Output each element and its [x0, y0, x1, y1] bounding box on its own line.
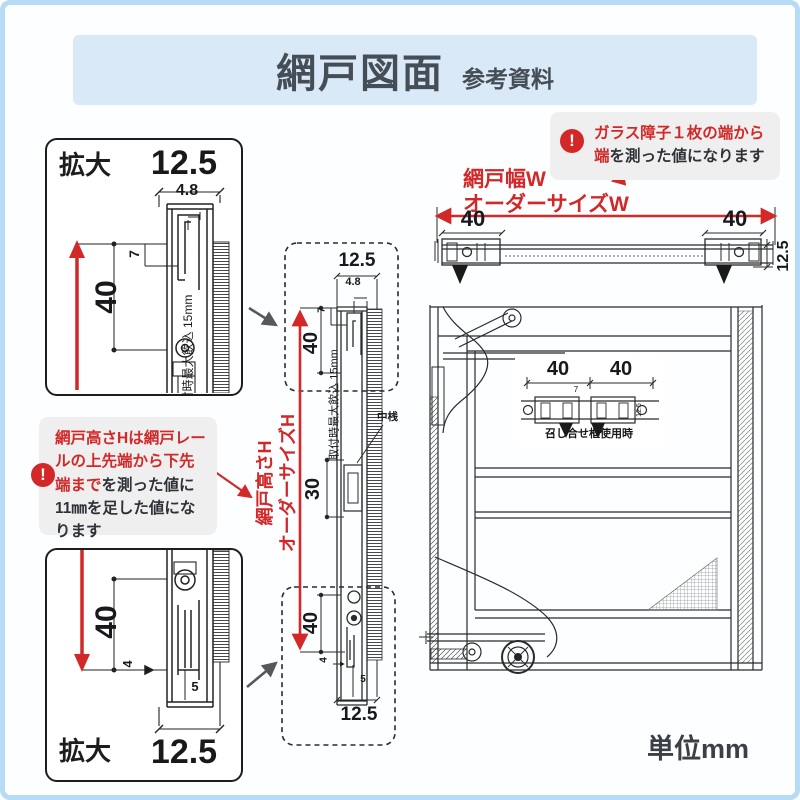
page-header: 網戸図面 参考資料: [73, 35, 757, 105]
drawing-page: 網戸図面 参考資料: [0, 0, 800, 800]
dim-40-section-right: 40: [707, 208, 763, 230]
dim-7-inset: 7: [570, 386, 582, 394]
dim-12-5-inset: 12.5: [635, 400, 643, 420]
dim-4-8-top-left: 4.8: [172, 183, 202, 199]
width-note-red-2: 端: [594, 148, 610, 165]
dim-4-bottom-left: 4: [120, 656, 134, 672]
width-note-black: を測った値になります: [610, 148, 765, 165]
dim-4-8-mid: 4.8: [339, 277, 367, 288]
dim-40-inset-left: 40: [529, 359, 587, 379]
dim-40-top-left: 40: [90, 273, 124, 321]
dim-5-bottom-left: 5: [188, 680, 202, 693]
dim-12-5-mid-bottom: 12.5: [329, 705, 389, 724]
dim-40-bottom-left: 40: [90, 598, 124, 646]
max-insertion-label-mid: 取付時最大飲込 15mm: [328, 320, 343, 490]
enlarged-view-top: 拡大 12.5 4.8 7 40 取付時最大飲込 15mm: [45, 138, 243, 396]
dim-12-5-section: 12.5: [775, 234, 793, 278]
page-subtitle: 参考資料: [462, 60, 554, 94]
dim-30-mid: 30: [302, 472, 324, 506]
dim-40-mid-bottom: 40: [300, 606, 322, 640]
screen-height-label: 網戸高さH: [254, 414, 277, 552]
dim-40-mid-top: 40: [300, 326, 322, 360]
mullion-label: 中桟: [377, 409, 413, 424]
connector-arrow-top: [249, 308, 276, 325]
alert-icon: !: [560, 129, 584, 153]
page-title: 網戸図面: [276, 41, 444, 99]
dim-12-5-mid-top: 12.5: [327, 251, 387, 270]
meeting-stile-label: 召し合せ框使用時: [521, 429, 657, 440]
dim-12-5-top-left: 12.5: [145, 146, 223, 180]
height-dimension-label: 網戸高さH オーダーサイズH: [254, 388, 300, 578]
enlarged-view-bottom: 拡大 12.5 40 4 5: [45, 548, 243, 782]
dim-12-5-bottom-left: 12.5: [145, 735, 223, 769]
order-height-label: オーダーサイズH: [277, 414, 300, 552]
dim-40-inset-right: 40: [592, 359, 650, 379]
width-note: ! ガラス障子１枚の端から 端を測った値になります: [550, 112, 780, 180]
height-note: ! 網戸高さHは網戸レールの上先端から下先端までを測った値に11㎜を足した値にな…: [39, 417, 217, 535]
dim-40-section-left: 40: [445, 208, 501, 230]
connector-arrow-bottom: [247, 663, 276, 687]
enlarge-label-bottom: 拡大: [59, 738, 129, 764]
screen-elevation: [419, 305, 762, 673]
max-insertion-label-top-left: 取付時最大飲込 15mm: [179, 270, 197, 396]
alert-icon: !: [31, 463, 55, 487]
dim-5-mid: 5: [356, 675, 370, 685]
dim-7-top-left: 7: [126, 246, 142, 262]
width-note-red-1: ガラス障子１枚の端から: [594, 125, 764, 142]
dim-4-mid: 4: [319, 654, 331, 667]
enlarge-label-top: 拡大: [59, 152, 129, 178]
dim-7-mid: 7: [317, 304, 329, 317]
height-note-arrow: [211, 469, 251, 497]
